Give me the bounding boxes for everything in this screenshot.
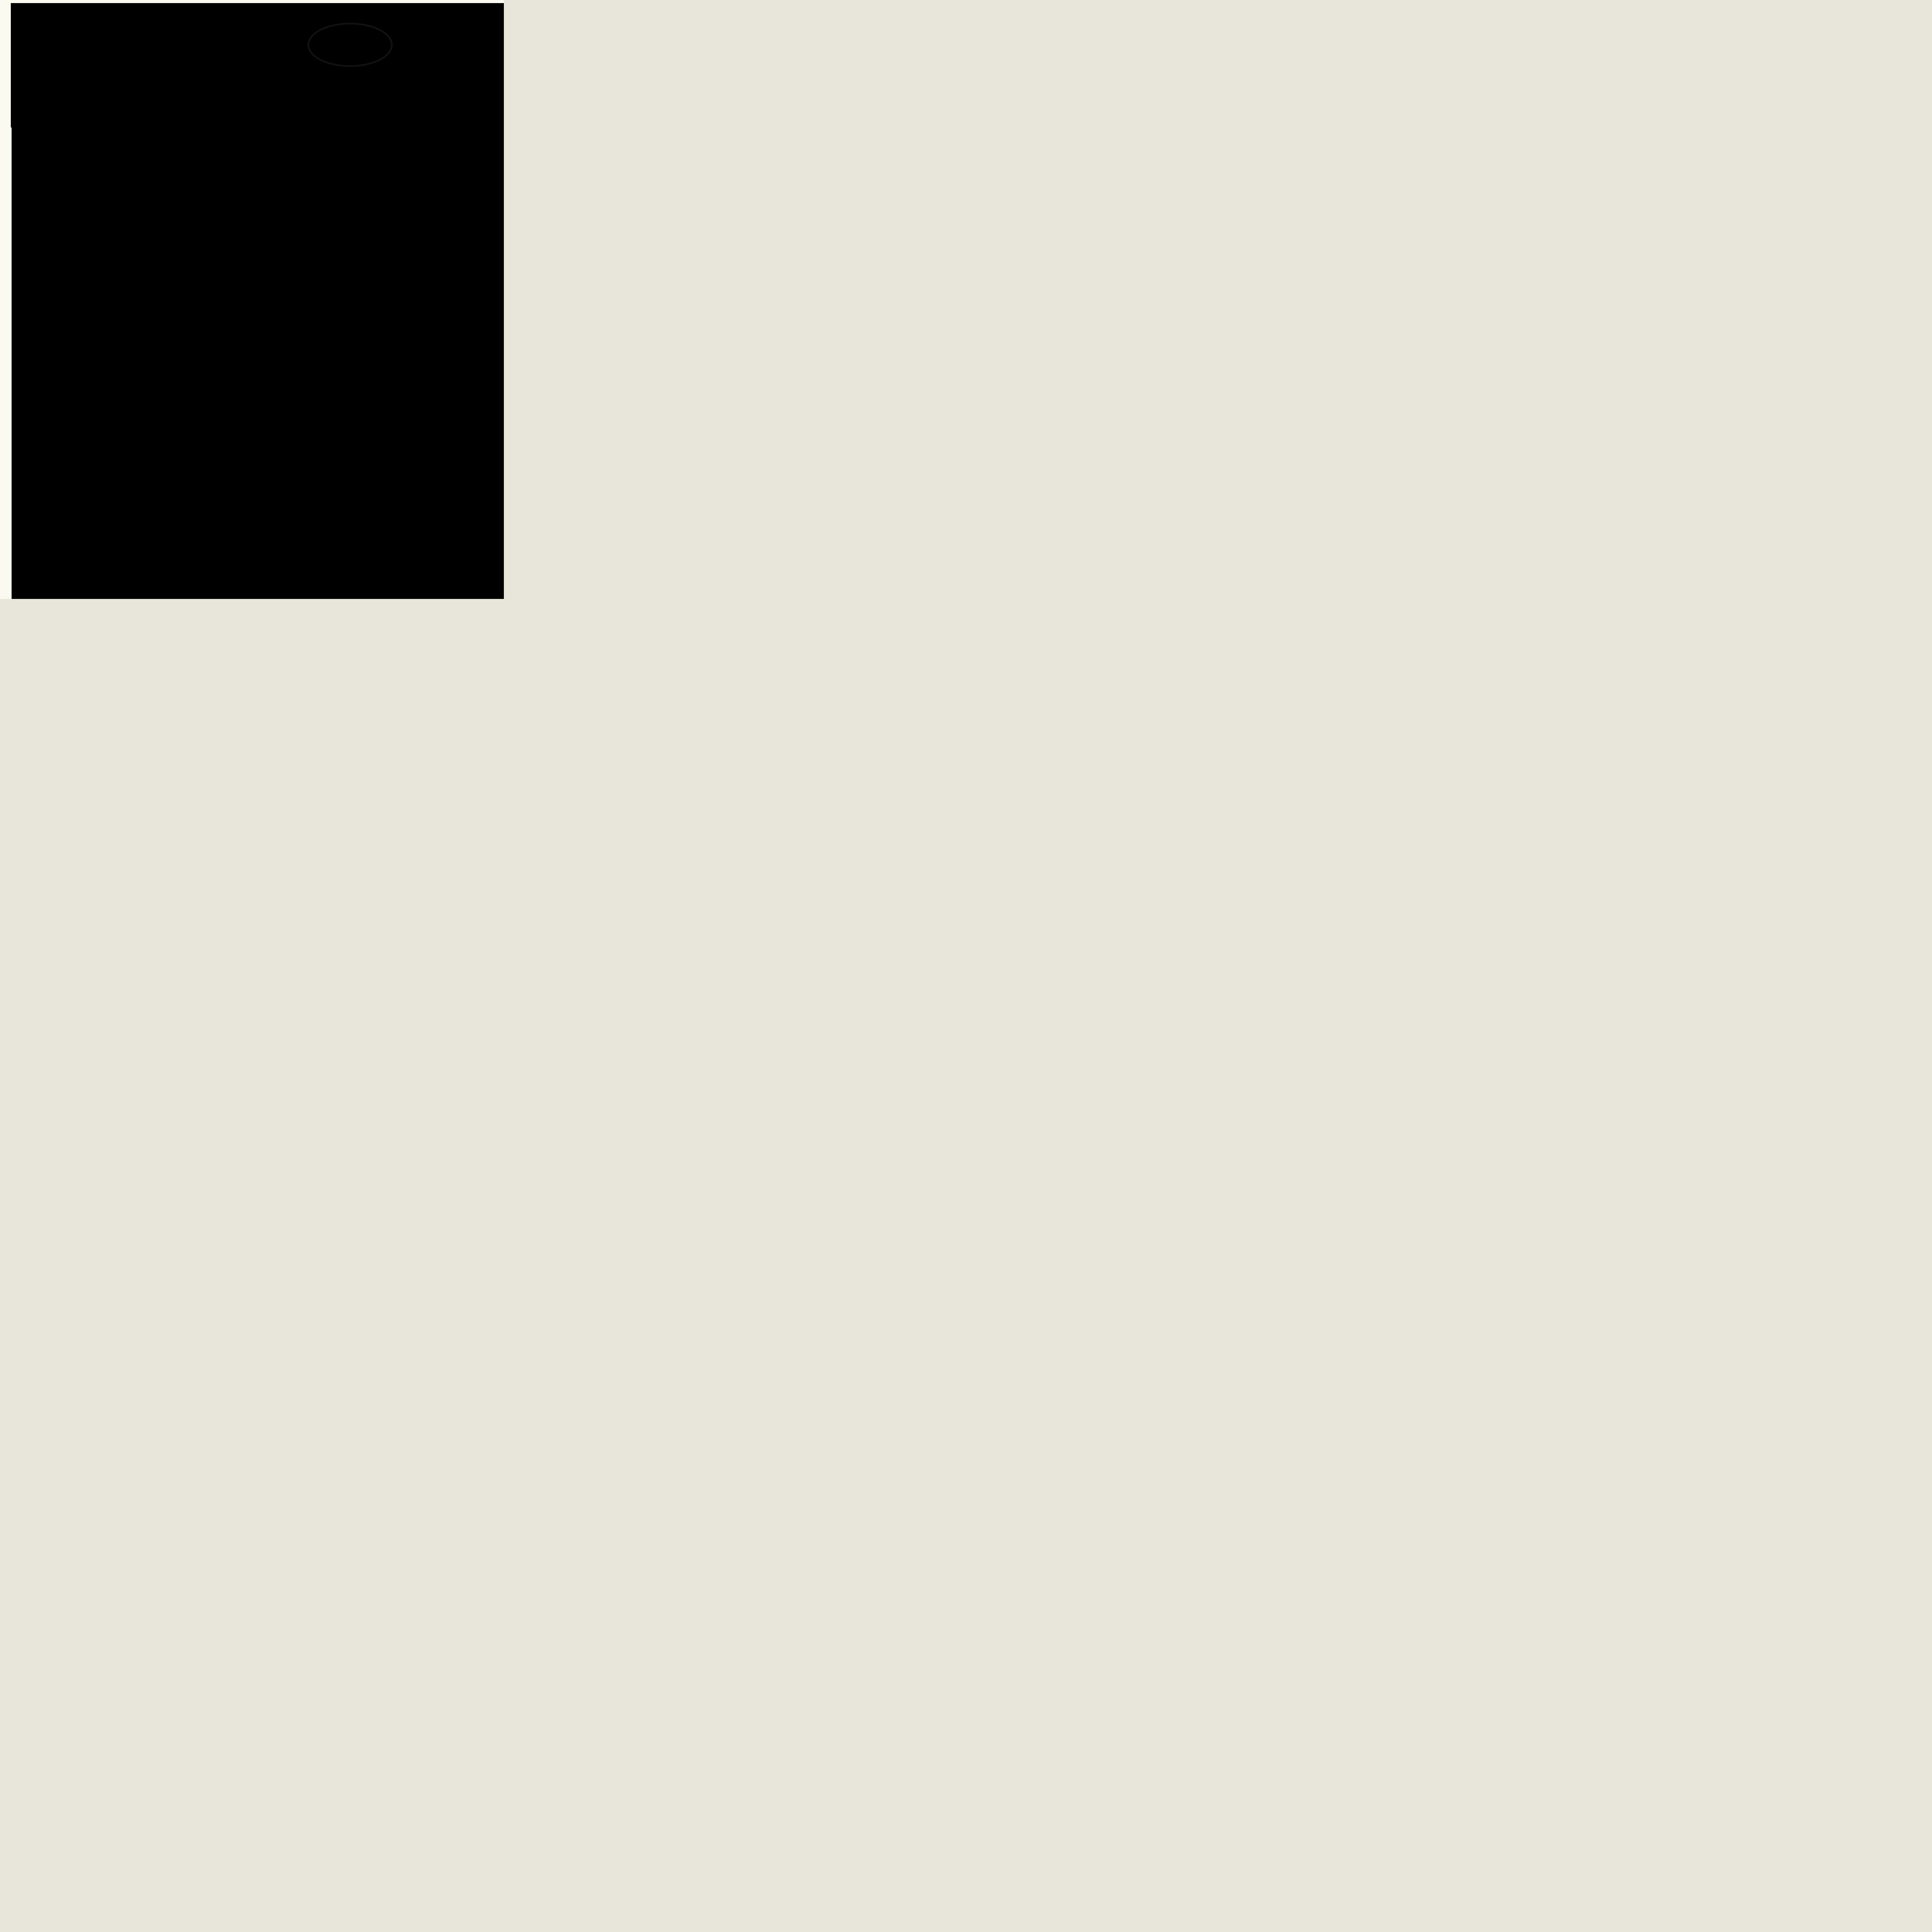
map-paper xyxy=(11,3,504,599)
sanborn-map-sheet xyxy=(0,0,504,599)
scan-edge xyxy=(0,128,12,599)
map-canvas xyxy=(0,0,504,599)
